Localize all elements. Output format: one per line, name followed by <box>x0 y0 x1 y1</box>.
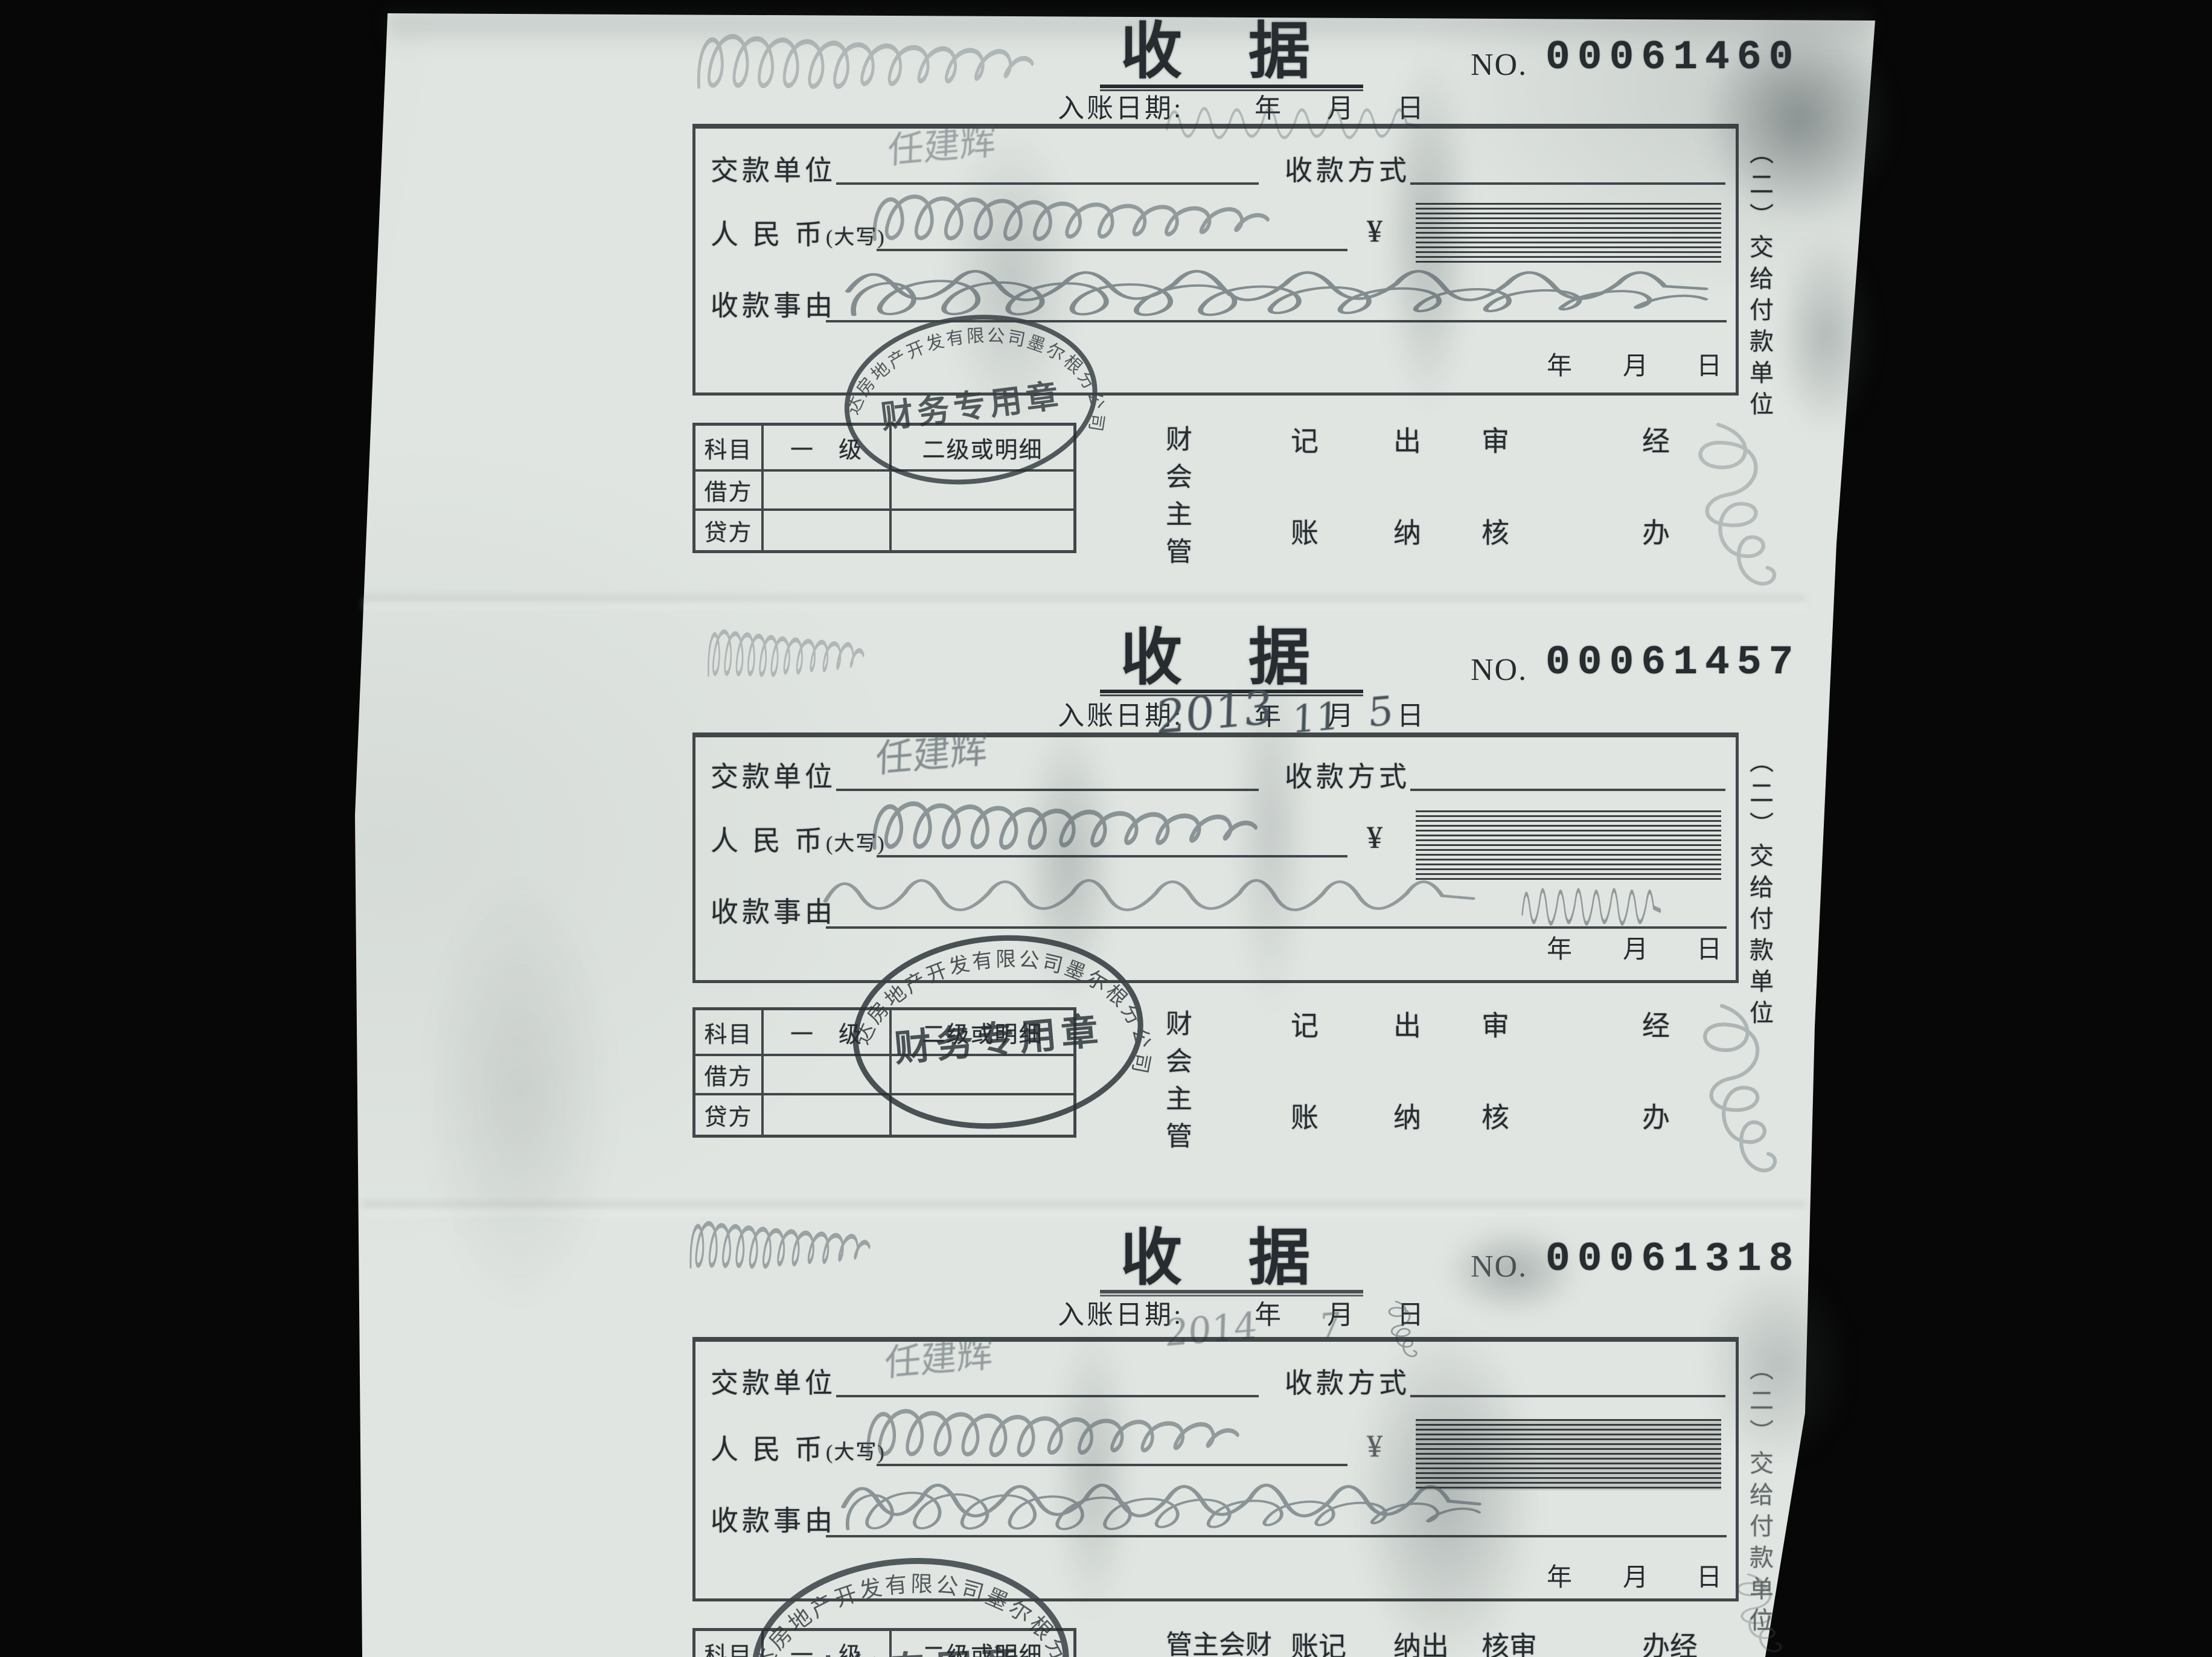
reason-label: 收款事由 <box>711 899 836 926</box>
method-label: 收款方式 <box>1285 763 1410 791</box>
payer-handwriting: 任建辉 <box>884 1336 993 1382</box>
cell-level2: 二级或明细 <box>892 426 1073 472</box>
pencil-scribble <box>688 1200 869 1273</box>
entry-date-label: 入账日期: <box>1058 95 1183 122</box>
day-label: 日 <box>1397 703 1424 729</box>
method-label: 收款方式 <box>1285 157 1410 185</box>
method-line <box>1410 789 1725 791</box>
account-table: 科目 一 级 二级或明细 借方 贷方 <box>692 423 1076 553</box>
cell-credit: 贷方 <box>695 511 764 550</box>
copy-note-vertical: （二）交给付款单位 <box>1747 749 1771 1031</box>
cell-subject: 科目 <box>695 1631 764 1657</box>
handler-label: 经办 <box>1640 1632 1695 1657</box>
reason-handwriting-scribble <box>1521 868 1660 917</box>
handler-label: 经办 <box>1640 426 1667 610</box>
supervisor-label: 财会主管 <box>1163 1010 1189 1159</box>
year-label: 年 <box>1547 937 1573 963</box>
cell-credit: 贷方 <box>695 1095 764 1135</box>
pencil-scribble <box>694 10 1032 94</box>
receipt-title: 收 据 <box>1120 1228 1312 1290</box>
cell-debit: 借方 <box>695 472 764 511</box>
cell-debit: 借方 <box>695 1056 764 1095</box>
receipt-no-value: 00061457 <box>1546 643 1800 684</box>
bookkeeper-label: 记账 <box>1288 1011 1316 1194</box>
account-table: 科目 一 级 二级或明细 借方 贷方 <box>692 1007 1076 1138</box>
handler-label: 经办 <box>1640 1011 1667 1194</box>
cell-level2: 二级或明细 <box>892 1631 1073 1657</box>
supervisor-label: 财会主管 <box>1163 1630 1269 1657</box>
year-label: 年 <box>1547 1565 1573 1591</box>
cashier-label: 出纳 <box>1391 1632 1446 1657</box>
fold-crease <box>362 595 1805 611</box>
account-table: 科目 一 级 二级或明细 借方 贷方 <box>692 1628 1076 1657</box>
year-label: 年 <box>1255 1302 1281 1328</box>
cell-level1: 一 级 <box>764 426 892 472</box>
receipt-title: 收 据 <box>1120 628 1312 690</box>
bookkeeper-label: 记账 <box>1288 1632 1344 1657</box>
amount-label: 人 民 币(大写) <box>711 1436 886 1464</box>
supervisor-label: 财会主管 <box>1163 425 1189 575</box>
reason-handwriting-scribble <box>839 1465 1479 1537</box>
method-label: 收款方式 <box>1285 1370 1410 1397</box>
day-handwriting: 5 <box>1367 691 1394 733</box>
bookkeeper-label: 记账 <box>1288 426 1316 610</box>
receipt-no-label: NO. <box>1471 50 1527 81</box>
month-label: 月 <box>1623 937 1649 963</box>
auditor-label: 审核 <box>1479 1632 1535 1657</box>
pencil-scribble <box>706 609 863 681</box>
amount-handwriting-scribble <box>869 780 1256 868</box>
cell-level1: 一 级 <box>764 1631 892 1657</box>
cell-empty <box>892 1056 1073 1095</box>
payer-label: 交款单位 <box>711 1370 836 1397</box>
receipt-title: 收 据 <box>1120 22 1312 83</box>
fold-crease <box>362 1202 1805 1217</box>
margin-signature-scribble <box>1672 415 1787 591</box>
year-label: 年 <box>1547 354 1573 379</box>
month-label: 月 <box>1623 1565 1649 1591</box>
cashier-label: 出纳 <box>1391 426 1419 610</box>
title-underline <box>1100 1290 1363 1296</box>
cell-subject: 科目 <box>695 1010 764 1056</box>
entry-date-label: 入账日期: <box>1058 1302 1183 1328</box>
cell-subject: 科目 <box>695 426 764 472</box>
month-label: 月 <box>1623 354 1649 379</box>
method-line <box>1410 1395 1725 1397</box>
margin-signature-scribble <box>1678 996 1787 1178</box>
receipt-no-value: 00061318 <box>1546 1239 1800 1280</box>
cell-empty <box>764 1056 892 1095</box>
reason-label: 收款事由 <box>711 1507 836 1535</box>
payer-label: 交款单位 <box>711 763 836 791</box>
cell-empty <box>764 472 892 511</box>
yuan-sign: ¥ <box>1367 1431 1386 1463</box>
scan-photo: { "document": { "kind": "photocopied sta… <box>0 0 2212 1657</box>
cell-empty <box>892 511 1073 550</box>
yuan-sign: ¥ <box>1367 822 1386 854</box>
auditor-label: 审核 <box>1479 1011 1507 1194</box>
cell-empty <box>764 1095 892 1135</box>
day-label: 日 <box>1696 1565 1723 1591</box>
cell-empty <box>892 472 1073 511</box>
receipt-no-label: NO. <box>1471 1251 1527 1283</box>
receipt-no-label: NO. <box>1471 655 1527 686</box>
copy-note-vertical: （二）交给付款单位 <box>1747 140 1771 423</box>
payer-handwriting: 任建辉 <box>875 731 988 778</box>
amount-label: 人 民 币(大写) <box>711 221 886 249</box>
amount-handwriting-scribble <box>863 1388 1238 1475</box>
cell-empty <box>764 511 892 550</box>
day-label: 日 <box>1696 354 1723 379</box>
reason-label: 收款事由 <box>711 292 836 320</box>
cell-level2: 二级或明细 <box>892 1010 1073 1056</box>
payer-handwriting: 任建辉 <box>887 123 996 169</box>
cell-empty <box>892 1095 1073 1135</box>
method-line <box>1410 182 1725 185</box>
cell-level1: 一 级 <box>764 1010 892 1056</box>
receipt-no-value: 00061460 <box>1546 37 1800 79</box>
auditor-label: 审核 <box>1479 426 1507 610</box>
yuan-sign: ¥ <box>1367 216 1386 248</box>
day-label: 日 <box>1696 937 1723 963</box>
margin-signature-scribble <box>1722 1570 1788 1655</box>
payer-label: 交款单位 <box>711 157 836 185</box>
amount-label: 人 民 币(大写) <box>711 827 886 855</box>
amount-handwriting-scribble <box>869 174 1268 258</box>
cashier-label: 出纳 <box>1391 1011 1419 1194</box>
